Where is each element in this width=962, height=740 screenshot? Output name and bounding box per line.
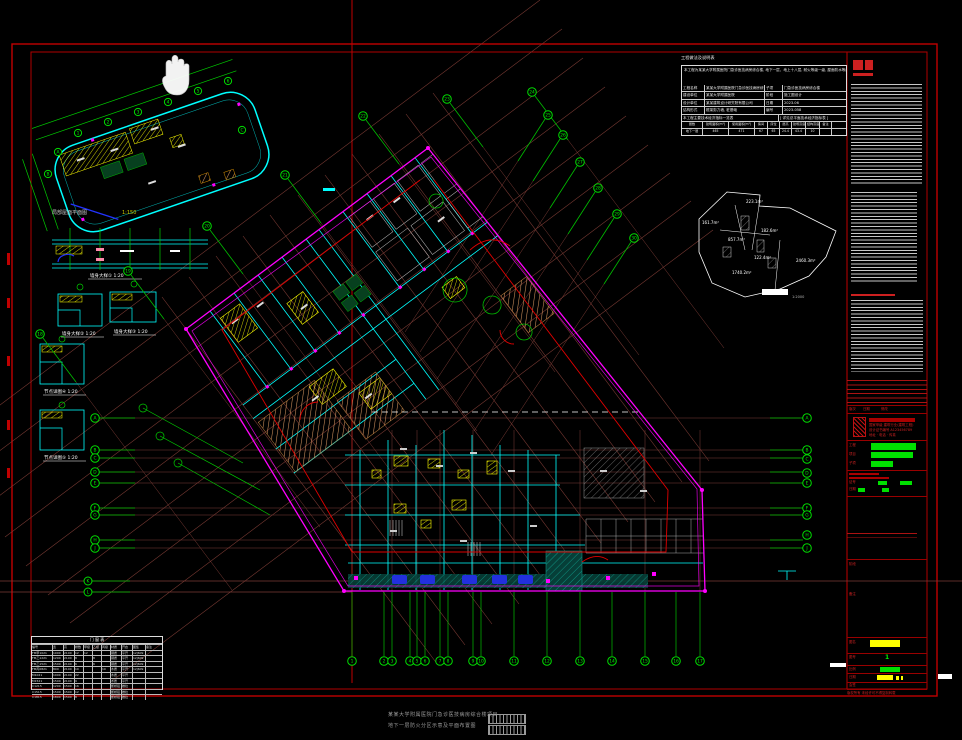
grid-bubble-label: A	[805, 416, 808, 422]
schedule-cell: 木质	[110, 679, 121, 684]
grid-bubble-label: G	[805, 513, 809, 519]
spec-cell: 框架剪力墙, 桩基础	[704, 107, 764, 113]
detail-2: 墙身大样② 1:20	[58, 294, 104, 337]
grid-bubble-label: 26	[560, 133, 566, 139]
mini-plan-scale: 1:150	[122, 210, 136, 216]
schedule-cell: 平开	[121, 667, 132, 672]
schedule-cell	[92, 690, 101, 695]
stage-label: 阶段	[849, 563, 856, 567]
key-plan-area-label: 223.1m²	[746, 199, 763, 204]
grid-line	[455, 234, 568, 405]
schedule-cell	[92, 667, 101, 672]
grid-line	[533, 139, 560, 181]
schedule-cell	[92, 679, 101, 684]
grid-bubble-label: 6	[424, 659, 427, 665]
copyright-line: 版权所有 未经许可不得复制转载	[847, 690, 896, 695]
schedule-cell: 16	[74, 684, 83, 689]
spec-cell: 备注	[819, 122, 831, 128]
grid-bubble-label: 27	[577, 160, 583, 166]
schedule-cell	[145, 690, 162, 695]
schedule-cell: 1500	[52, 662, 63, 667]
spec-cell: 使用面积(m²)	[728, 122, 754, 128]
date-label: 日期	[849, 676, 856, 680]
schedule-cell: C1215	[32, 684, 52, 689]
grid-bubble-label: 11	[511, 659, 517, 665]
scale-label: 比例	[849, 668, 856, 672]
schedule-cell: 1500	[63, 684, 74, 689]
spec-cell: 471	[728, 129, 754, 135]
title-block: 版次 日期 修改 国家甲级 建筑行业(建筑工程) 设计证书编号 A1234567…	[847, 380, 927, 689]
schedule-cell: 12J609	[132, 662, 145, 667]
spec-cell: 编号	[764, 107, 782, 113]
schedule-cell: 丙级	[101, 645, 110, 650]
schedule-cell	[83, 662, 92, 667]
schedule-cell: 1500	[63, 695, 74, 700]
schedule-cell: 材质	[110, 645, 121, 650]
spec-cell: 465	[702, 129, 728, 135]
schedule-cell	[101, 679, 110, 684]
schedule-cell	[145, 667, 162, 672]
grid-bubble-label: 16	[673, 659, 679, 665]
spec-cell: 层数	[682, 122, 702, 128]
main-floor-plan	[184, 101, 796, 593]
detail-3: 墙身大样③ 1:20	[110, 292, 156, 335]
grid-bubble-label: 30	[631, 236, 637, 242]
key-plan: 1:2000 161.7m²223.1m²857.7m²182.6m²122.4…	[699, 192, 836, 299]
grid-bubble-label: 10	[478, 659, 484, 665]
schedule-cell: 8	[92, 656, 101, 661]
econ-note: [ 详见总平面技术经济指标表 ]	[778, 115, 846, 121]
notes-text-block-2	[851, 192, 917, 284]
drawing-number-value: 1	[885, 654, 889, 661]
room-label-marks	[230, 143, 555, 437]
schedule-cell: 乙级	[92, 645, 101, 650]
schedule-cell	[132, 695, 145, 700]
survey-symbol	[778, 571, 796, 580]
schedule-cell	[132, 684, 145, 689]
grid-bubble-label: 3	[391, 659, 394, 665]
grid-bubble-label: 4	[409, 659, 412, 665]
schedule-cell: 10	[101, 667, 110, 672]
spec-cell: 某某大学附属医院门急诊医技病房综合楼	[704, 85, 764, 91]
pan-hand-icon[interactable]	[162, 55, 189, 95]
sign-label: 会签	[849, 684, 856, 688]
grid-bubble-label: 19	[125, 269, 131, 275]
grid-bubble-label: E	[806, 481, 809, 487]
schedule-cell: 12J609	[132, 651, 145, 656]
schedule-cell	[145, 695, 162, 700]
detail-1-title: 墙身大样① 1:20	[90, 272, 124, 279]
grid-bubble-label: 17	[697, 659, 703, 665]
schedule-cell: C1815	[32, 695, 52, 700]
schedule-cell: 2100	[63, 667, 74, 672]
schedule-cell: M1021	[32, 673, 52, 678]
grid-line	[210, 230, 243, 274]
schedule-cell	[92, 684, 101, 689]
schedule-cell: 12	[74, 651, 83, 656]
schedule-cell: 8	[74, 656, 83, 661]
drawing-number-label: 图号	[849, 656, 856, 660]
schedule-cell: 推拉	[121, 684, 132, 689]
footer-line-1: 某某大学附属医院门急诊医技病房综合楼项目	[388, 711, 498, 718]
rooms-yellow-lower	[372, 456, 497, 528]
grid-bubble-label: B	[805, 448, 808, 454]
schedule-cell: 2100	[63, 651, 74, 656]
grid-bubble-label: 28	[595, 186, 601, 192]
schedule-cell: 钢质	[110, 651, 121, 656]
schedule-cell	[83, 673, 92, 678]
schedule-cell: 12J609	[132, 656, 145, 661]
spec-cell: 工程名称	[682, 85, 704, 91]
spec-cell	[831, 122, 846, 128]
schedule-cell	[83, 667, 92, 672]
econ-label: 本工程主要技术经济指标一览表	[682, 115, 778, 121]
grid-bubble-label: 15	[642, 659, 648, 665]
schedule-cell: 1500	[52, 690, 63, 695]
grid-bubble-label: 23	[444, 97, 450, 103]
schedule-cell	[101, 662, 110, 667]
company-block: 国家甲级 建筑行业(建筑工程) 设计证书编号 A123456789 地址 · 电…	[847, 414, 927, 441]
spec-cell: 结构高度(m)	[805, 122, 819, 128]
spec-cell: 建筑面积(m²)	[702, 122, 728, 128]
schedule-cell	[101, 695, 110, 700]
grid-bubble-label: 9	[472, 659, 475, 665]
grid-bubble-label: A	[93, 416, 96, 422]
grid-bubble-label: 22	[360, 114, 366, 120]
grid-line	[420, 181, 533, 352]
spec-cell: 房间	[754, 122, 767, 128]
subitem-highlight	[871, 461, 893, 467]
schedule-cell	[132, 690, 145, 695]
spec-cell: 门急诊医技病房综合楼	[782, 85, 846, 91]
grid-bubble-label: 24	[529, 90, 535, 96]
grid-bubble-label: 3	[137, 110, 140, 116]
schedule-cell	[145, 656, 162, 661]
schedule-cell	[83, 690, 92, 695]
schedule-cell: 12J609	[132, 667, 145, 672]
item-name-highlight	[871, 452, 913, 458]
schedule-cell: 平开	[121, 656, 132, 661]
hatched-block	[584, 448, 644, 498]
spec-cell: 65	[767, 129, 779, 135]
grid-bubble-label: E	[94, 481, 97, 487]
detail-3-title: 墙身大样③ 1:20	[114, 328, 148, 335]
note-label: 备注	[849, 593, 856, 597]
revision-table	[847, 380, 927, 406]
schedule-cell: 木质	[110, 673, 121, 678]
notes-text-block-3	[851, 300, 923, 372]
key-plan-scale-label: 1:2000	[792, 295, 804, 299]
schedule-cell	[145, 684, 162, 689]
schedule-title: 门 窗 表	[32, 637, 162, 644]
schedule-cell: FM乙1221	[32, 656, 52, 661]
mini-plan-caption: 局部屋面平面图	[52, 209, 87, 216]
schedule-cell: 2100	[63, 662, 74, 667]
schedule-cell	[92, 651, 101, 656]
schedule-cell	[145, 673, 162, 678]
date-highlight-3	[901, 676, 903, 680]
logo-icon	[853, 60, 863, 70]
grid-line	[450, 103, 483, 147]
building-outline	[184, 146, 707, 593]
spec-values-row: 地下一层465471676524.443.410	[682, 128, 846, 135]
spec-cell: 2023.06	[782, 100, 846, 106]
schedule-cell: 1200	[52, 656, 63, 661]
spec-cell: 层高	[779, 122, 791, 128]
company-name-bar	[869, 418, 915, 422]
grid-bubble-label: 18	[37, 332, 43, 338]
schedule-cell: 1200	[52, 684, 63, 689]
schedule-cell: 1500	[52, 679, 63, 684]
cert-label-2: 日期	[849, 488, 856, 492]
schedule-cell	[83, 684, 92, 689]
grid-bubble-label: 6	[227, 79, 230, 85]
schedule-cell: 1800	[52, 695, 63, 700]
key-plan-area-label: 1740.2m²	[732, 270, 752, 275]
field-label-1: 工程	[849, 444, 856, 448]
schedule-cell: 钢质	[110, 656, 121, 661]
spec-table-caption: 工程做法及说明表	[681, 55, 847, 65]
schedule-cell: 6	[92, 662, 101, 667]
schedule-cell	[92, 695, 101, 700]
schedule-cell: 平开	[121, 651, 132, 656]
grid-bubble-label: 8	[447, 659, 450, 665]
grid-bubble-label: G	[93, 513, 97, 519]
schedule-cell: 高	[63, 645, 74, 650]
schedule-cell: 12	[74, 690, 83, 695]
logo-underline	[853, 73, 873, 76]
spec-intro: 本工程为某某大学附属医院门急诊医技病房综合楼, 地下一层、地上十八层, 耐火等级…	[682, 66, 846, 85]
date-highlight-1	[877, 675, 893, 680]
grid-line	[131, 275, 164, 319]
grid-bubble-label: 20	[204, 224, 210, 230]
schedule-cell	[145, 679, 162, 684]
footer-signoff-box-2	[488, 725, 526, 735]
spec-cell: 设计单位	[682, 100, 704, 106]
schedule-cell: 钢质	[110, 662, 121, 667]
key-plan-area-label: 2460.3m²	[796, 258, 816, 263]
grid-bubble-label: B	[46, 172, 49, 178]
detail-4-title: 节点详图④ 1:20	[44, 388, 78, 395]
schedule-cell: FM甲1021	[32, 651, 52, 656]
drawing-name-label: 图名	[849, 641, 856, 645]
grid-bubble-label: J	[93, 546, 95, 552]
grid-bubble-label: 7	[439, 659, 442, 665]
grid-bubble-label: C	[93, 456, 96, 462]
grid-bubble-label: C	[240, 128, 243, 134]
schedule-cell: 2100	[63, 656, 74, 661]
schedule-cell: 800	[52, 667, 63, 672]
schedule-cell: FM乙1521	[32, 662, 52, 667]
cyan-note-mark	[323, 188, 335, 191]
spec-cell: 建筑高度(m)	[791, 122, 805, 128]
mini-roof-plan: 局部屋面平面图 1:150	[14, 58, 276, 247]
footer-line-2: 地下一层防火分区示意及平面布置图	[388, 722, 476, 729]
project-fields: 工程 项目 子项	[847, 441, 927, 471]
grid-line	[366, 120, 399, 164]
detail-5: 节点详图⑤ 1:20	[40, 410, 86, 461]
spec-cell: 43.4	[791, 129, 805, 135]
door-window-schedule: 门 窗 表 编号宽高樘数甲级乙级丙级材质开启图集备注FM甲10211000210…	[31, 636, 163, 690]
rev-col-1: 版次	[849, 408, 856, 412]
schedule-cell: 平开	[121, 679, 132, 684]
schedule-cell: 木质	[110, 667, 121, 672]
key-plan-area-label: 122.4m²	[754, 255, 771, 260]
schedule-body: 编号宽高樘数甲级乙级丙级材质开启图集备注FM甲1021100021001212钢…	[32, 644, 162, 700]
grid-bubble-label: H	[93, 538, 96, 544]
grid-line	[568, 140, 724, 348]
grid-bubble-label: 2	[107, 120, 110, 126]
notes-column	[849, 58, 925, 378]
tree-outlines	[429, 194, 532, 340]
schedule-cell: M1521	[32, 679, 52, 684]
grid-line	[568, 192, 595, 234]
schedule-cell: 断桥铝	[110, 690, 121, 695]
spec-table: 工程做法及说明表 本工程为某某大学附属医院门急诊医技病房综合楼, 地下一层、地上…	[681, 55, 847, 167]
grid-bubble-label: 12	[544, 659, 550, 665]
key-plan-hatches	[723, 216, 776, 268]
grid-bubble-label: 21	[282, 173, 288, 179]
detail-2-title: 墙身大样② 1:20	[62, 330, 96, 337]
company-logo-icon	[853, 417, 866, 437]
notes-red-rule	[851, 294, 895, 296]
grid-line	[288, 179, 321, 223]
grid-bubble-label: 4	[167, 100, 170, 106]
schedule-cell: 2100	[63, 673, 74, 678]
cad-sheet-viewport: 局部屋面平面图 1:150 墙身大样① 1:20 墙身大样② 1:20	[0, 0, 962, 740]
schedule-cell: 推拉	[121, 690, 132, 695]
key-plan-area-label: 857.7m²	[728, 237, 745, 242]
company-sub-3: 地址 · 电话 · 传真	[869, 434, 896, 438]
spec-cell: 某某建筑设计研究院有限公司	[704, 100, 764, 106]
key-plan-area-labels: 161.7m²223.1m²857.7m²182.6m²122.4m²1740.…	[702, 199, 816, 275]
schedule-cell	[92, 673, 101, 678]
cert-block: 证号 日期	[847, 471, 927, 497]
grid-bubble-label: H	[805, 533, 808, 539]
spec-cell: 施工图设计	[782, 92, 846, 98]
schedule-cell: 平开	[121, 662, 132, 667]
key-plan-scale-bar	[762, 289, 788, 295]
spec-cell: 10	[805, 129, 819, 135]
schedule-cell: 开启	[121, 645, 132, 650]
spec-cell: 2023-058	[782, 107, 846, 113]
stair-runs	[390, 520, 480, 556]
spec-cell: 床位	[767, 122, 779, 128]
field-label-2: 项目	[849, 453, 856, 457]
spec-cell: 日期	[764, 100, 782, 106]
schedule-cell: 断桥铝	[110, 695, 121, 700]
schedule-cell	[83, 679, 92, 684]
grid-bubble-label: 29	[614, 212, 620, 218]
spec-cell: 67	[754, 129, 767, 135]
schedule-cell	[101, 651, 110, 656]
spec-cell: 结构形式	[682, 107, 704, 113]
grid-bubble-label: A	[56, 150, 59, 156]
spec-rows: 工程名称某某大学附属医院门急诊医技病房综合楼子项门急诊医技病房综合楼建设单位某某…	[682, 85, 846, 114]
schedule-cell: 6	[74, 662, 83, 667]
date-highlight-2	[896, 676, 899, 680]
schedule-cell: 1000	[52, 651, 63, 656]
field-label-3: 子项	[849, 462, 856, 466]
project-name-highlight	[871, 443, 916, 450]
rev-col-2: 日期	[863, 408, 870, 412]
grid-bubble-label: C	[805, 457, 808, 463]
grid-bubble-label: 14	[609, 659, 615, 665]
planting-block	[546, 551, 582, 591]
schedule-cell: 2100	[63, 679, 74, 684]
scale-highlight	[880, 667, 900, 672]
schedule-cell	[101, 690, 110, 695]
grid-bubble-label: 5	[197, 89, 200, 95]
schedule-cell: 1000	[52, 673, 63, 678]
spec-cell: 建设单位	[682, 92, 704, 98]
spec-cell: 阶段	[764, 92, 782, 98]
key-plan-area-label: 182.6m²	[761, 228, 778, 233]
grid-bubble-label: 13	[577, 659, 583, 665]
schedule-cell: 樘数	[74, 645, 83, 650]
rev-col-3: 修改	[881, 408, 888, 412]
cert-label-1: 证号	[849, 481, 856, 485]
schedule-cell: 22	[74, 673, 83, 678]
schedule-cell: 图集	[132, 645, 145, 650]
grid-bubble-label: B	[93, 448, 96, 454]
spec-cell	[819, 129, 831, 135]
schedule-cell: 12	[83, 651, 92, 656]
spec-cell: 子项	[764, 85, 782, 91]
schedule-cell	[132, 679, 145, 684]
schedule-cell: 10	[74, 667, 83, 672]
spec-cell	[831, 129, 846, 135]
grid-line	[550, 166, 577, 208]
drawing-name-highlight	[870, 640, 900, 647]
schedule-cell	[132, 673, 145, 678]
lower-wing	[345, 412, 706, 591]
grid-bubble-label: J	[805, 546, 807, 552]
grid-line	[76, 382, 232, 590]
schedule-cell: 8	[74, 695, 83, 700]
schedule-cell	[101, 673, 110, 678]
schedule-cell: 1500	[63, 690, 74, 695]
spec-cell: 地下一层	[682, 129, 702, 135]
grid-line	[43, 338, 76, 382]
grid-bubble-label: 2	[383, 659, 386, 665]
title-block-note-lines	[847, 533, 917, 538]
spec-cell: 某某大学附属医院	[704, 92, 764, 98]
grid-bubble-label: 25	[545, 113, 551, 119]
schedule-cell	[83, 656, 92, 661]
grid-line	[518, 119, 545, 161]
grid-line	[587, 218, 614, 260]
logo-icon-2	[865, 60, 873, 70]
grid-bubble-label: 5	[416, 659, 419, 665]
schedule-cell	[83, 695, 92, 700]
schedule-cell	[101, 656, 110, 661]
schedule-cell	[145, 662, 162, 667]
detail-5-title: 节点详图⑤ 1:20	[44, 454, 78, 461]
schedule-cell: C1515	[32, 690, 52, 695]
schedule-cell	[145, 651, 162, 656]
schedule-cell: 断桥铝	[110, 684, 121, 689]
schedule-cell: 编号	[32, 645, 52, 650]
grid-bubble-label: 1	[351, 659, 354, 665]
schedule-cell: 推拉	[121, 695, 132, 700]
notes-text-block-1	[851, 84, 922, 184]
spec-header-row: 层数建筑面积(m²)使用面积(m²)房间床位层高建筑高度(m)结构高度(m)备注	[682, 121, 846, 128]
grid-bubble-label: K	[87, 579, 90, 585]
schedule-cell: 备注	[145, 645, 162, 650]
footer-signoff-box-1	[488, 714, 526, 724]
schedule-cell: 甲级	[83, 645, 92, 650]
